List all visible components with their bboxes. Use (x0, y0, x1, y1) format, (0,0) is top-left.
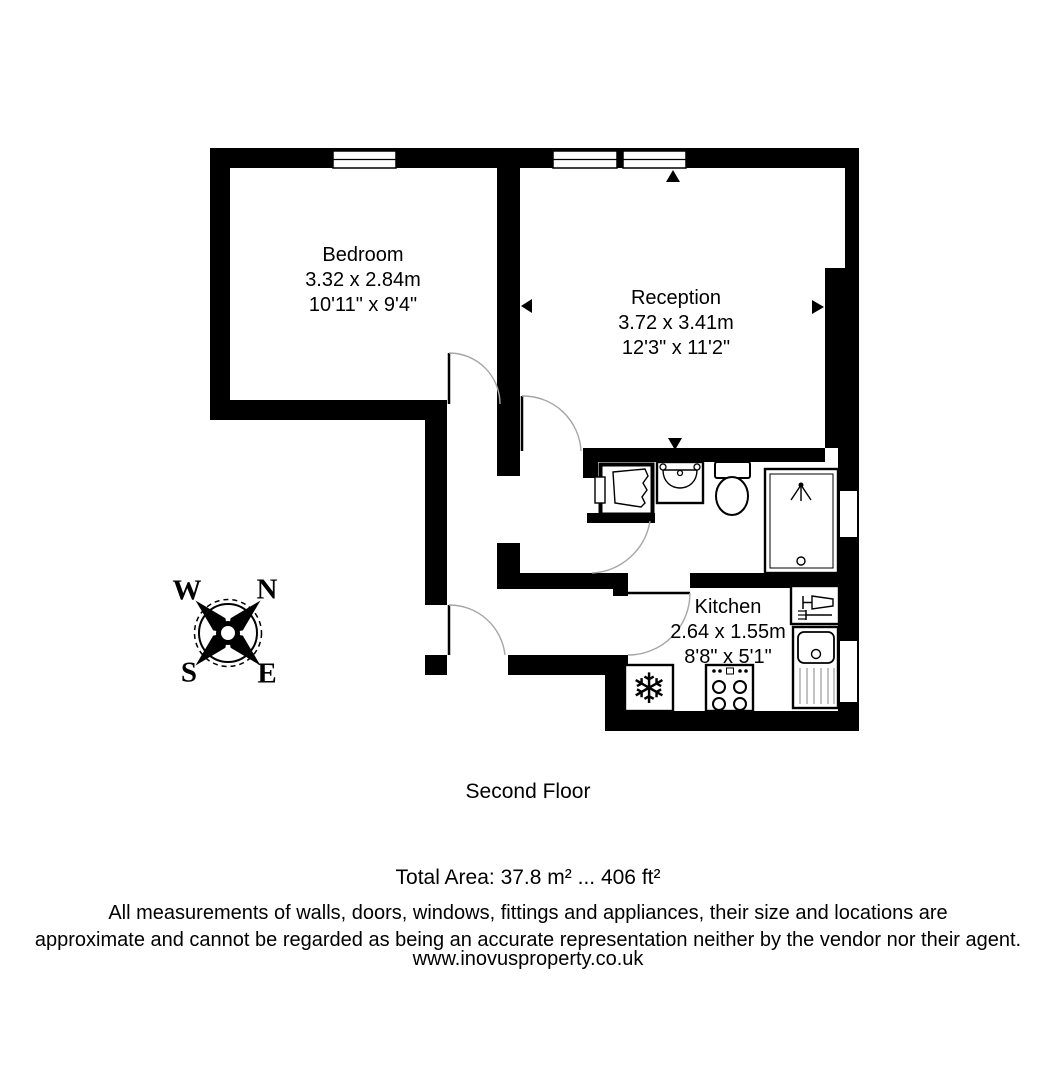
wall-divider-upper (497, 148, 520, 476)
disclaimer-text: All measurements of walls, doors, window… (0, 900, 1056, 954)
floor-title: Second Floor (0, 780, 1056, 804)
reception-window-left (553, 151, 617, 168)
hob-icon (706, 665, 753, 711)
sink-drainer-icon (793, 627, 838, 708)
wall-reception-bottom (583, 448, 825, 462)
reception-imperial-dimensions: 12'3" x 11'2" (618, 336, 734, 361)
compass-north-label: N (257, 574, 278, 607)
bedroom-metric-dimensions: 3.32 x 2.84m (305, 268, 421, 293)
basin-icon (657, 462, 703, 503)
kitchen-name: Kitchen (670, 595, 786, 620)
compass-east-label: E (257, 658, 276, 691)
bedroom-name: Bedroom (305, 243, 421, 268)
bedroom-imperial-dimensions: 10'11" x 9'4" (305, 293, 421, 318)
wall-top (210, 148, 859, 168)
kitchen-imperial-dimensions: 8'8" x 5'1" (670, 645, 786, 670)
bathroom-window (840, 491, 857, 537)
bedroom-label: Bedroom 3.32 x 2.84m 10'11" x 9'4" (305, 243, 421, 318)
bathroom-door-arc (592, 521, 650, 573)
compass-rose-icon (195, 600, 262, 667)
disclaimer-line1: All measurements of walls, doors, window… (0, 900, 1056, 927)
shower-icon (765, 469, 838, 573)
toilet-icon (715, 462, 750, 515)
kitchen-metric-dimensions: 2.64 x 1.55m (670, 620, 786, 645)
washing-machine-icon (595, 465, 653, 515)
compass-south-label: S (181, 657, 197, 690)
arrow-right-icon (812, 300, 824, 314)
kitchen-window (840, 641, 857, 702)
entry-door-arc (449, 605, 505, 655)
fridge-icon: ❄ (625, 664, 673, 713)
wall-hall-left-lower (425, 655, 447, 675)
dishwasher-icon (791, 586, 839, 624)
wall-right-mid (825, 268, 859, 448)
wall-hall-bottom (508, 655, 628, 675)
bedroom-door-arc (449, 353, 500, 404)
bedroom-window (333, 151, 396, 168)
snowflake-icon: ❄ (631, 664, 666, 713)
reception-name: Reception (618, 286, 734, 311)
total-area-text: Total Area: 37.8 m² ... 406 ft² (0, 866, 1056, 890)
floorplan-page: ❄ (0, 0, 1056, 1080)
reception-window-right (623, 151, 686, 168)
wall-bedroom-bottom (210, 400, 447, 420)
reception-metric-dimensions: 3.72 x 3.41m (618, 311, 734, 336)
kitchen-label: Kitchen 2.64 x 1.55m 8'8" x 5'1" (670, 595, 786, 670)
wall-hall-left-upper (425, 420, 447, 605)
arrow-up-icon (666, 170, 680, 182)
wall-hall-kitchen-top (497, 573, 628, 589)
arrow-left-icon (521, 299, 532, 313)
website-url: www.inovusproperty.co.uk (0, 948, 1056, 971)
wall-kitchen-door-jamb (613, 589, 628, 596)
wall-kitchen-bottom (605, 711, 859, 731)
reception-label: Reception 3.72 x 3.41m 12'3" x 11'2" (618, 286, 734, 361)
compass-west-label: W (173, 575, 202, 608)
wall-left (210, 148, 230, 420)
wall-bath-stub-vertical (583, 462, 598, 478)
reception-door-arc (522, 396, 581, 451)
wall-right-upper (845, 148, 859, 268)
